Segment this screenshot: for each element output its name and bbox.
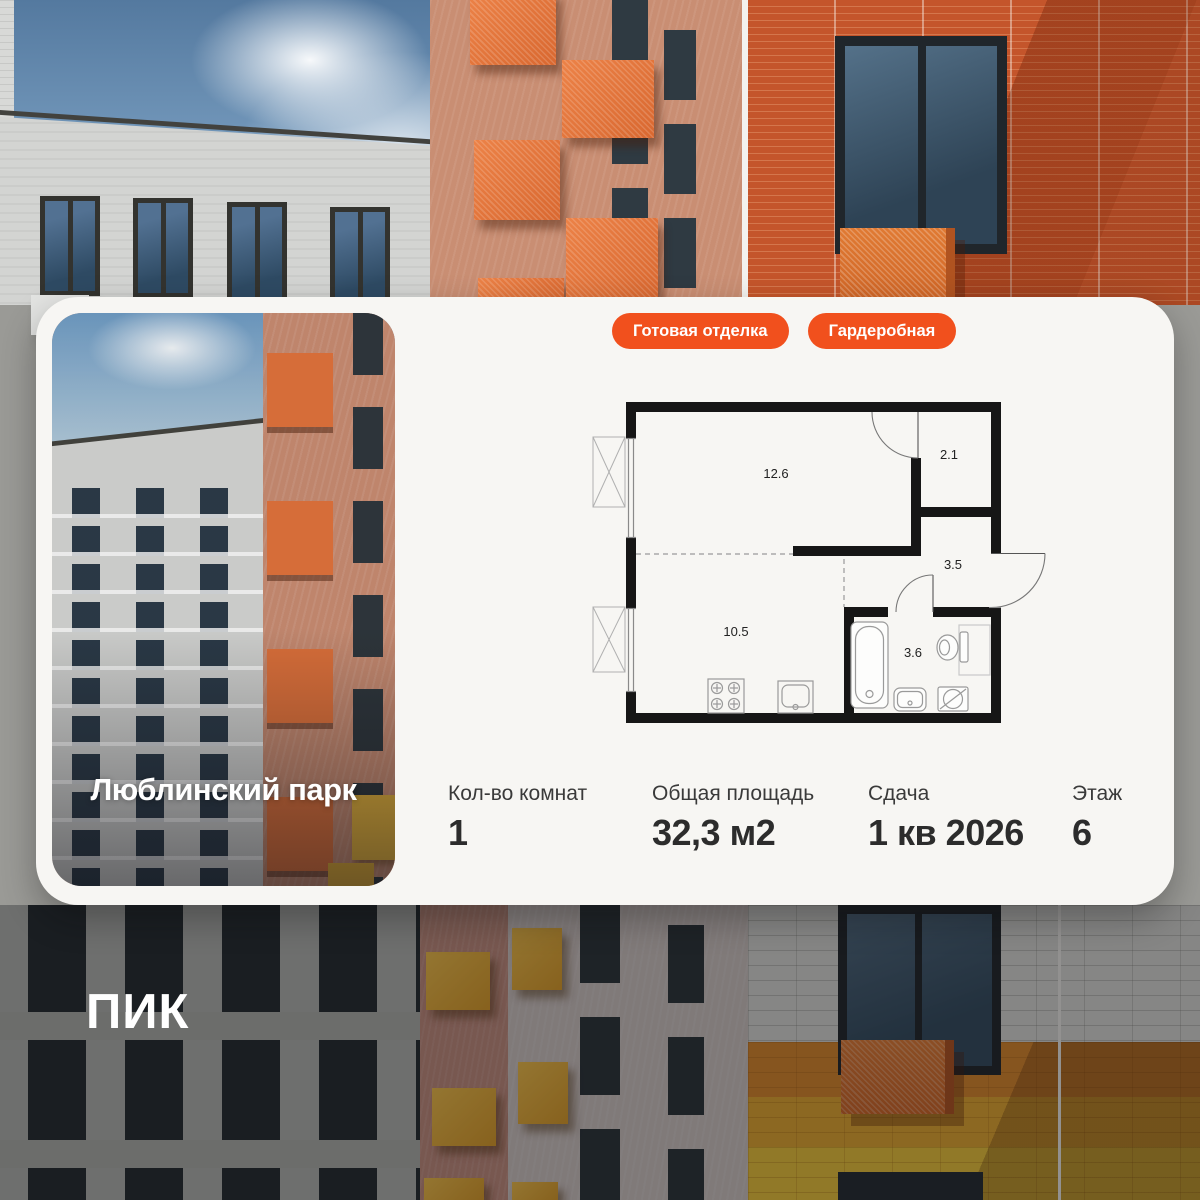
stat-value: 1 кв 2026 xyxy=(868,815,1024,851)
project-name: Люблинский парк xyxy=(52,772,395,808)
background-window xyxy=(40,196,100,296)
kitchen-fixtures xyxy=(708,679,813,713)
listing-card[interactable]: Люблинский парк Готовая отделка Гардероб… xyxy=(36,297,1174,905)
ac-mesh-box xyxy=(840,228,955,305)
toilet-icon xyxy=(960,632,968,662)
stat-label: Общая площадь xyxy=(652,783,814,804)
stat-rooms: Кол-во комнат 1 xyxy=(448,783,587,851)
stat-label: Этаж xyxy=(1072,783,1122,804)
badge-row: Готовая отделка Гардеробная xyxy=(612,313,956,349)
background-window xyxy=(835,36,1007,254)
background-window xyxy=(133,198,193,298)
balcony-box xyxy=(566,218,658,298)
project-photo: Люблинский парк xyxy=(52,313,395,886)
stat-value: 32,3 м2 xyxy=(652,815,814,851)
room-label-hallway: 3.5 xyxy=(944,557,962,572)
pik-logo[interactable]: ПИК xyxy=(86,988,189,1037)
stat-floor: Этаж 6 xyxy=(1072,783,1122,851)
bathroom-fixtures xyxy=(851,622,990,711)
badge-finish: Готовая отделка xyxy=(612,313,789,349)
kitchen-sink-icon xyxy=(778,681,813,713)
stat-label: Сдача xyxy=(868,783,1024,804)
stat-value: 6 xyxy=(1072,815,1122,851)
room-label-living: 12.6 xyxy=(763,466,788,481)
balcony-box xyxy=(474,140,560,220)
floor-plan: 12.6 2.1 3.5 10.5 3.6 xyxy=(550,397,1010,737)
promo-page: ПИК Люблинский парк Готовая отделка Гард… xyxy=(0,0,1200,1200)
room-label-bathroom: 3.6 xyxy=(904,645,922,660)
background-dim-overlay xyxy=(0,905,1200,1200)
room-label-kitchen: 10.5 xyxy=(723,624,748,639)
balcony-box xyxy=(562,60,654,138)
room-label-wardrobe: 2.1 xyxy=(940,447,958,462)
balcony-box xyxy=(470,0,556,65)
stat-value: 1 xyxy=(448,815,587,851)
background-window xyxy=(227,202,287,302)
balcony-basket-symbol xyxy=(593,437,625,672)
stat-delivery: Сдача 1 кв 2026 xyxy=(868,783,1024,851)
stat-label: Кол-во комнат xyxy=(448,783,587,804)
background-window-slots xyxy=(664,30,696,305)
stat-area: Общая площадь 32,3 м2 xyxy=(652,783,814,851)
background-window xyxy=(330,207,390,307)
badge-wardrobe: Гардеробная xyxy=(808,313,957,349)
plan-dashed-boundary xyxy=(636,554,844,607)
